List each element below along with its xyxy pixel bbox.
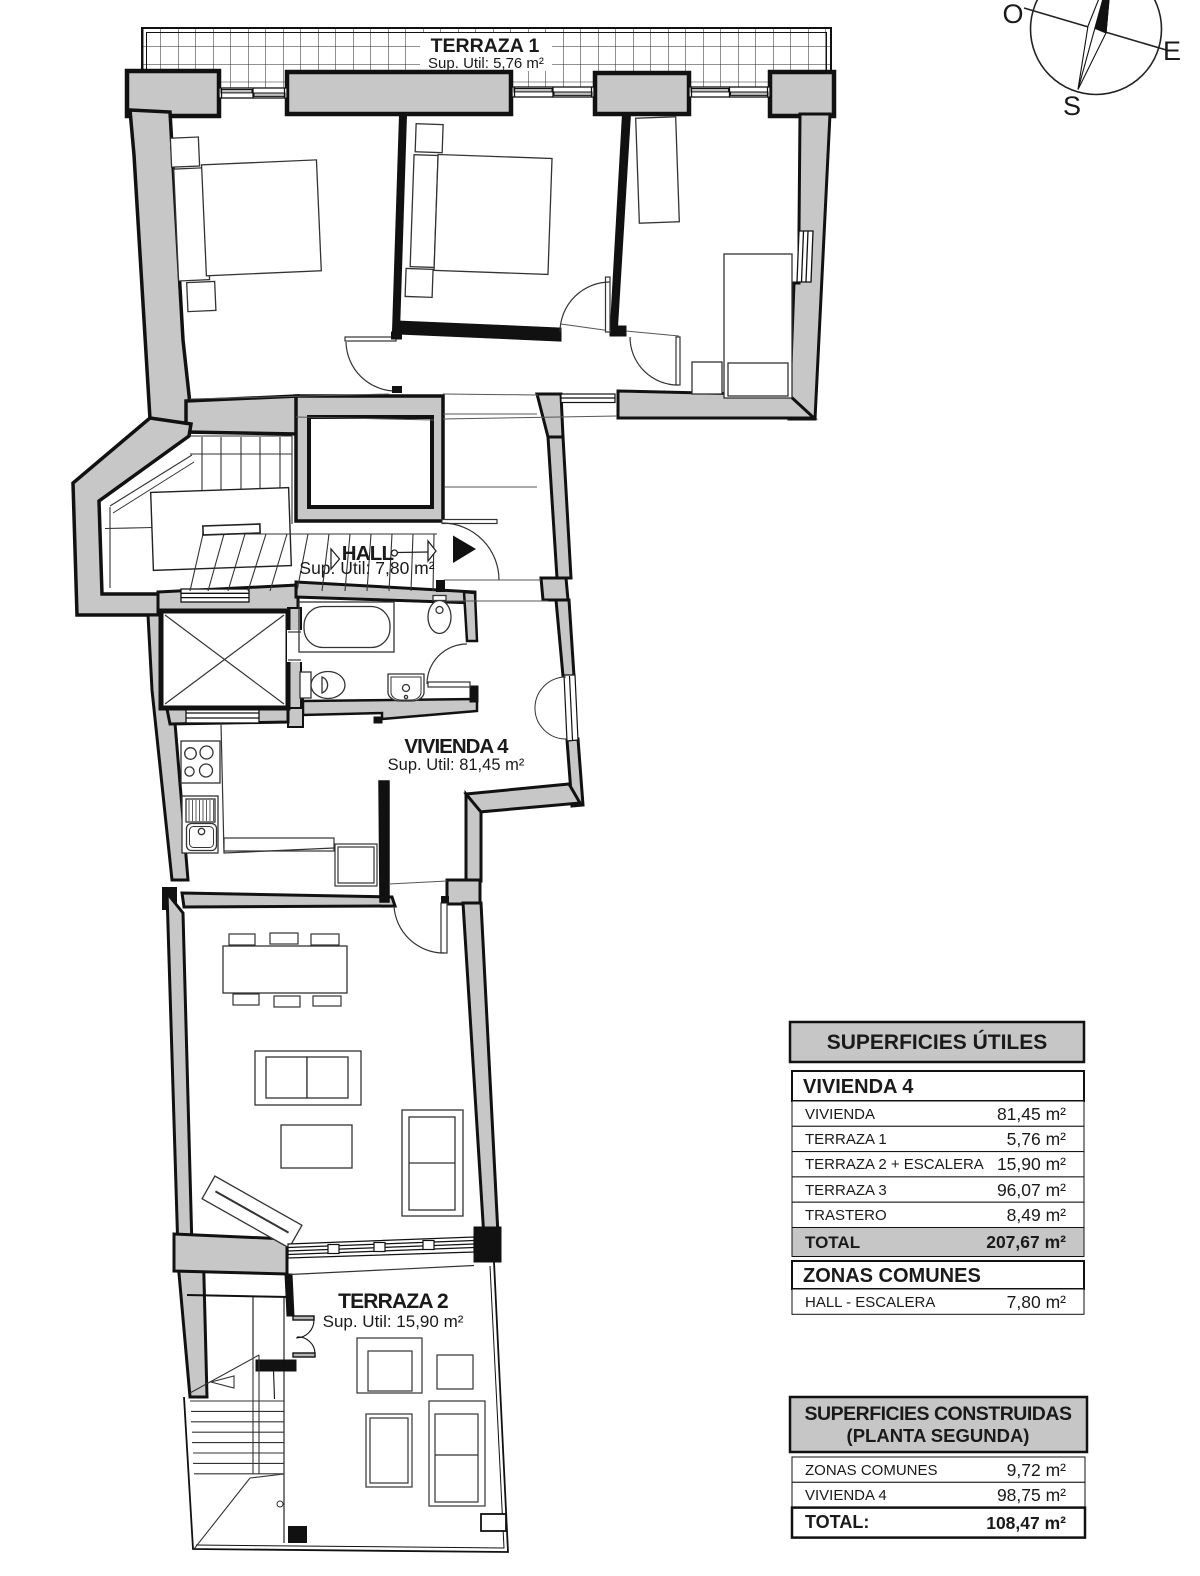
- svg-text:8,49 m²: 8,49 m²: [1007, 1205, 1066, 1225]
- svg-text:TOTAL: TOTAL: [805, 1233, 860, 1252]
- svg-text:TERRAZA 2: TERRAZA 2: [338, 1290, 448, 1313]
- svg-text:Sup. Util: 81,45 m²: Sup. Util: 81,45 m²: [388, 756, 525, 774]
- svg-text:TERRAZA 1: TERRAZA 1: [431, 35, 540, 57]
- svg-text:5,76 m²: 5,76 m²: [1007, 1129, 1066, 1149]
- svg-text:HALL - ESCALERA: HALL - ESCALERA: [805, 1294, 935, 1311]
- svg-text:Sup. Util: 15,90 m²: Sup. Util: 15,90 m²: [323, 1312, 464, 1331]
- svg-text:SUPERFICIES CONSTRUIDAS: SUPERFICIES CONSTRUIDAS: [805, 1403, 1072, 1425]
- svg-text:Sup. Util: 7,80 m²: Sup. Util: 7,80 m²: [299, 558, 434, 578]
- svg-text:VIVIENDA 4: VIVIENDA 4: [805, 1487, 887, 1504]
- svg-text:O: O: [1002, 0, 1023, 29]
- svg-text:VIVIENDA: VIVIENDA: [805, 1106, 875, 1123]
- svg-text:Sup. Util: 5,76 m²: Sup. Util: 5,76 m²: [428, 55, 544, 72]
- svg-text:98,75 m²: 98,75 m²: [997, 1485, 1066, 1505]
- svg-text:TOTAL:: TOTAL:: [805, 1512, 869, 1532]
- svg-text:7,80 m²: 7,80 m²: [1007, 1292, 1066, 1312]
- svg-text:SUPERFICIES ÚTILES: SUPERFICIES ÚTILES: [827, 1030, 1048, 1054]
- svg-text:TERRAZA 3: TERRAZA 3: [805, 1182, 887, 1199]
- svg-text:96,07 m²: 96,07 m²: [997, 1180, 1066, 1200]
- svg-text:ZONAS COMUNES: ZONAS COMUNES: [805, 1462, 938, 1479]
- svg-text:9,72 m²: 9,72 m²: [1007, 1460, 1066, 1480]
- svg-text:108,47 m²: 108,47 m²: [986, 1513, 1066, 1533]
- svg-text:207,67 m²: 207,67 m²: [986, 1232, 1066, 1252]
- svg-text:VIVIENDA 4: VIVIENDA 4: [803, 1076, 914, 1098]
- svg-text:TRASTERO: TRASTERO: [805, 1207, 887, 1224]
- svg-text:TERRAZA 1: TERRAZA 1: [805, 1131, 887, 1148]
- svg-text:ZONAS COMUNES: ZONAS COMUNES: [803, 1265, 981, 1287]
- svg-text:15,90 m²: 15,90 m²: [997, 1154, 1066, 1174]
- svg-text:TERRAZA 2 + ESCALERA: TERRAZA 2 + ESCALERA: [805, 1156, 984, 1173]
- svg-text:VIVIENDA 4: VIVIENDA 4: [404, 735, 509, 758]
- svg-text:(PLANTA SEGUNDA): (PLANTA SEGUNDA): [847, 1425, 1030, 1446]
- svg-text:81,45 m²: 81,45 m²: [997, 1104, 1066, 1124]
- svg-text:S: S: [1063, 91, 1081, 121]
- svg-text:E: E: [1163, 36, 1181, 66]
